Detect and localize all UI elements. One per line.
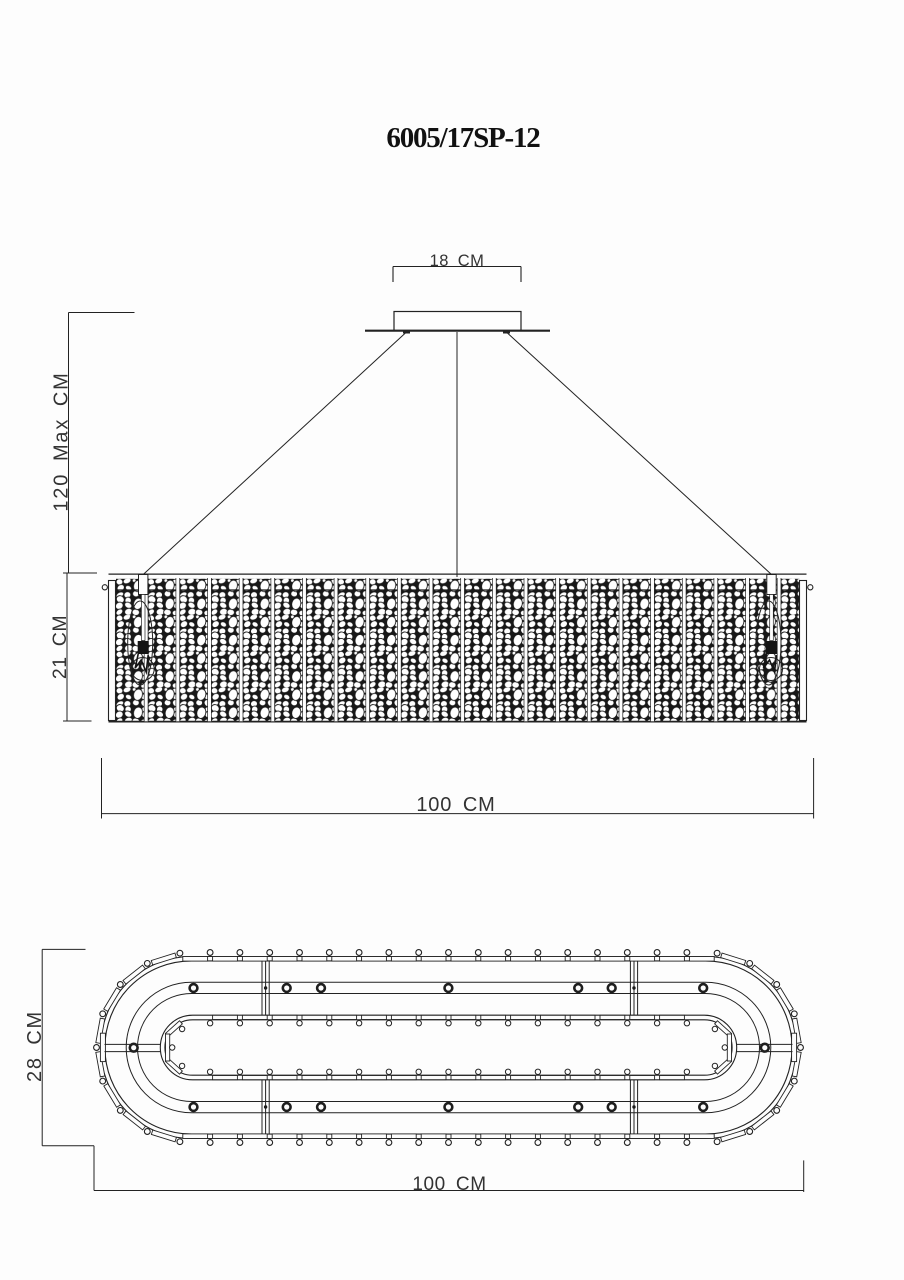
- svg-text:120 Max CM: 120 Max CM: [51, 371, 73, 511]
- svg-text:28 CM: 28 CM: [24, 1010, 46, 1082]
- svg-text:21 CM: 21 CM: [49, 615, 71, 679]
- svg-text:18 CM: 18 CM: [430, 252, 485, 270]
- svg-text:100 CM: 100 CM: [416, 794, 495, 816]
- svg-text:6005/17SP-12: 6005/17SP-12: [386, 122, 540, 154]
- svg-text:100 CM: 100 CM: [412, 1174, 486, 1195]
